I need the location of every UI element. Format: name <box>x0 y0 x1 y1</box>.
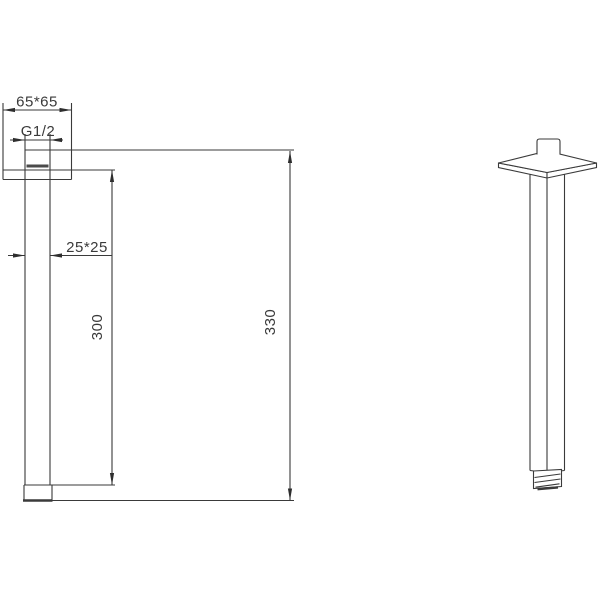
perspective-view <box>499 139 597 489</box>
dim-label-tube-length: 300 <box>89 314 106 341</box>
arrowhead-right <box>50 253 62 257</box>
arrowhead-bottom <box>288 489 292 501</box>
dim-label-flange-size: 65*65 <box>16 94 58 111</box>
arm-tube <box>25 134 50 485</box>
front-section-view: 65*65 G1/2 25*25 300 <box>3 94 294 501</box>
mounting-thread-3d <box>537 139 560 155</box>
dimension-overall-length: 330 <box>262 151 292 501</box>
arrowhead-left <box>13 253 25 257</box>
dim-label-thread-size: G1/2 <box>21 123 56 140</box>
arrowhead-bottom <box>110 473 114 485</box>
dim-label-tube-size: 25*25 <box>66 239 108 256</box>
dimension-tube-length: 300 <box>89 170 114 485</box>
technical-drawing-canvas: 65*65 G1/2 25*25 300 <box>0 0 600 600</box>
arrowhead-top <box>110 170 114 182</box>
flange-plate-3d <box>499 151 597 178</box>
drawing-page: 65*65 G1/2 25*25 300 <box>0 0 600 600</box>
dimension-tube-size: 25*25 <box>8 239 112 258</box>
dimension-flange-size: 65*65 <box>3 94 72 113</box>
arrowhead-left <box>3 108 15 112</box>
arrowhead-right <box>60 108 72 112</box>
dimension-thread-size: G1/2 <box>10 123 63 142</box>
dim-label-overall-length: 330 <box>262 309 279 336</box>
arm-tube-3d <box>530 168 565 473</box>
end-cap-3d <box>534 470 562 490</box>
arrowhead-top <box>288 151 292 163</box>
end-cap <box>23 485 294 501</box>
